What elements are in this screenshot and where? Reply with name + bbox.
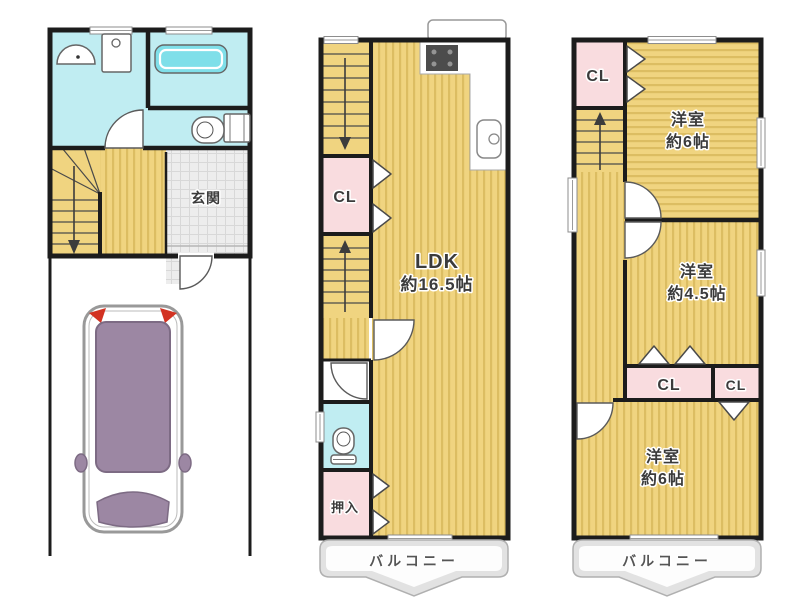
genkan-label: 玄関 <box>191 190 221 206</box>
floor3-plan: バルコニー CL 洋室 約6帖 洋室 約4.5帖 CL CL 洋室 約6帖 <box>568 37 765 597</box>
bedroom-middle-size-label: 約4.5帖 <box>667 284 726 303</box>
bedroom-top-size-label: 約6帖 <box>666 132 710 151</box>
corridor-3f <box>575 172 625 402</box>
balcony-2f-label: バルコニー <box>369 553 459 569</box>
floor-plan-canvas: 玄関 <box>0 0 800 600</box>
car-mirror-right <box>179 454 191 472</box>
toilet-icon-2f <box>331 428 356 464</box>
closet-3f-mid-label: CL <box>657 377 680 394</box>
washing-machine-icon <box>102 34 131 72</box>
car-icon <box>75 306 191 532</box>
bedroom-middle-name-label: 洋室 <box>680 262 714 281</box>
balcony-2f: バルコニー <box>320 540 508 596</box>
car-roof <box>96 322 170 472</box>
car-hood <box>97 492 169 527</box>
ldk-name-label: LDK <box>415 251 459 273</box>
balcony-3f-label: バルコニー <box>622 553 712 569</box>
stair-landing-2f <box>321 318 369 360</box>
oshiire-label: 押入 <box>331 500 359 515</box>
floor1-plan: 玄関 <box>50 27 250 556</box>
entrance-door-arc <box>180 256 212 289</box>
hallway-1f <box>100 148 166 256</box>
bedroom-bottom-size-label: 約6帖 <box>641 469 685 488</box>
stove-icon <box>426 45 458 71</box>
ldk-size-label: 約16.5帖 <box>400 274 473 294</box>
closet-2f-label: CL <box>333 189 356 206</box>
entrance-porch <box>166 258 180 284</box>
floor-plan-drawing: 玄関 <box>0 0 800 600</box>
bedroom-bottom-name-label: 洋室 <box>646 447 680 466</box>
car-mirror-left <box>75 454 87 472</box>
floor2-plan: バルコニー CL LDK 約16.5帖 押入 <box>316 20 508 596</box>
closet-3f-mid-small-label: CL <box>726 377 747 393</box>
closet-3f-top-label: CL <box>586 68 609 85</box>
balcony-3f: バルコニー <box>573 540 761 596</box>
bedroom-top-name-label: 洋室 <box>671 110 705 129</box>
